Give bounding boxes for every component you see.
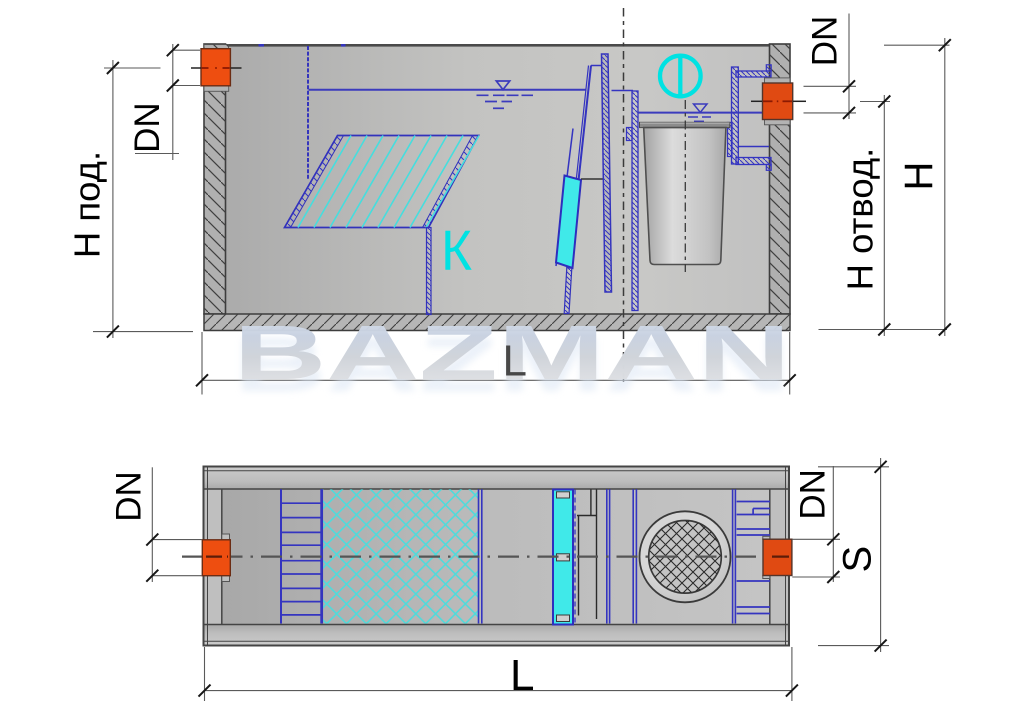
svg-text:К: К	[441, 219, 472, 283]
svg-text:Н под.: Н под.	[67, 151, 108, 258]
svg-text:S: S	[836, 546, 880, 573]
svg-text:DN: DN	[805, 16, 844, 67]
svg-text:DN: DN	[793, 469, 832, 520]
svg-text:Н отвод.: Н отвод.	[839, 148, 880, 291]
svg-text:L: L	[503, 337, 527, 386]
svg-text:Н: Н	[897, 162, 941, 191]
svg-text:DN: DN	[128, 102, 167, 153]
svg-text:L: L	[510, 651, 534, 700]
svg-text:DN: DN	[109, 471, 148, 522]
